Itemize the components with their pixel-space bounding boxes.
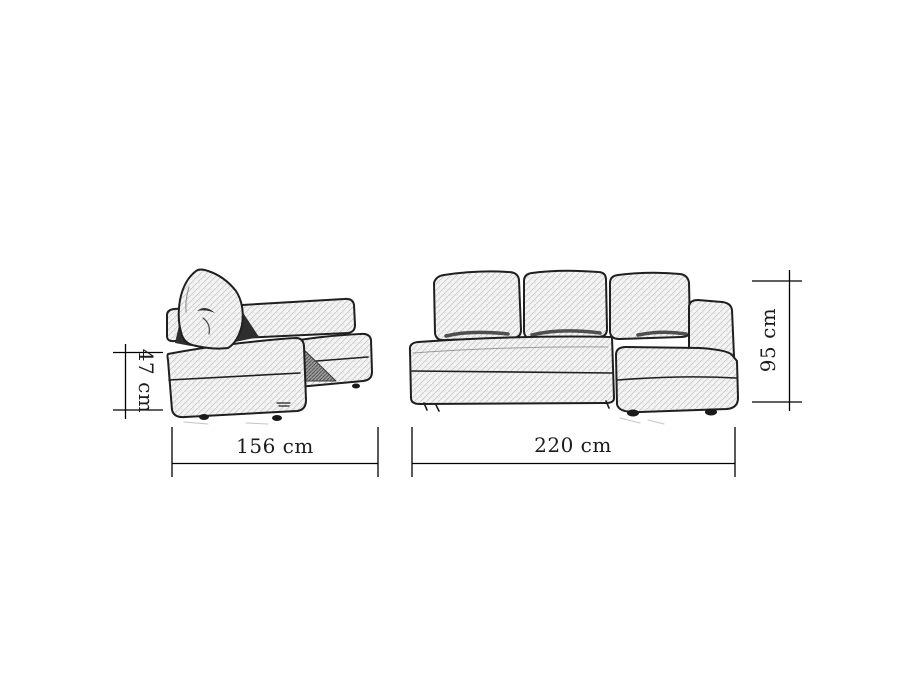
sofa-front-view-drawing — [410, 271, 738, 424]
back-cushion-3 — [610, 273, 690, 339]
sofa-side-view-drawing — [167, 270, 372, 425]
sofa-dimension-diagram: 47 cm 156 cm 220 cm 95 cm — [0, 0, 900, 675]
side-foot-mid — [272, 415, 282, 421]
back-cushion-1 — [434, 271, 521, 340]
front-view-width-label: 220 cm — [534, 433, 612, 457]
side-view-width-label: 156 cm — [236, 434, 314, 458]
back-cushion-2 — [524, 271, 607, 339]
side-foot-left — [199, 414, 209, 420]
side-view-height-label: 47 cm — [134, 349, 158, 413]
front-foot-chaise-right — [705, 409, 717, 416]
front-view-height-label: 95 cm — [756, 308, 780, 372]
side-pillow — [179, 270, 243, 349]
front-foot-chaise-left — [627, 410, 639, 417]
side-foot-right — [352, 384, 360, 389]
side-chaise-block — [168, 338, 307, 417]
